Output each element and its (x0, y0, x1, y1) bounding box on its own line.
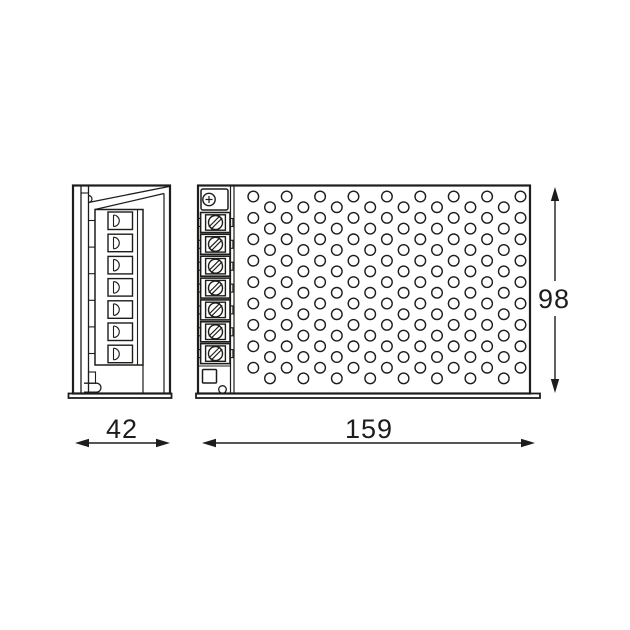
vent-hole (499, 223, 510, 234)
screw-head-icon (209, 237, 223, 251)
vent-hole (482, 213, 493, 224)
vent-hole (382, 277, 393, 288)
vent-hole (365, 266, 376, 277)
vent-hole (298, 223, 309, 234)
vent-hole (265, 288, 276, 299)
vent-hole (515, 234, 526, 245)
vent-hole (298, 245, 309, 256)
vent-hole (415, 320, 426, 331)
vent-hole (248, 362, 259, 373)
vent-hole (382, 341, 393, 352)
vent-hole (315, 213, 326, 224)
vent-hole (415, 298, 426, 309)
dimension-width-label: 42 (106, 414, 138, 444)
vent-hole (432, 266, 443, 277)
terminal-block-left-tab (198, 240, 201, 248)
vent-hole (298, 373, 309, 384)
vent-hole (432, 352, 443, 363)
terminal-slot (108, 345, 133, 363)
slot-hole-arc (114, 237, 120, 249)
vent-hole (315, 362, 326, 373)
vent-hole (382, 362, 393, 373)
vent-hole (348, 320, 359, 331)
vent-hole (365, 352, 376, 363)
vent-hole (332, 330, 343, 341)
vent-hole (499, 352, 510, 363)
arrow-left-icon (202, 439, 216, 447)
vent-hole (248, 191, 259, 202)
slot-hole-arc (114, 304, 120, 316)
vent-hole (448, 341, 459, 352)
vent-hole (281, 362, 292, 373)
vent-hole (432, 330, 443, 341)
arrow-right-icon (156, 439, 170, 447)
vent-hole (348, 255, 359, 266)
vent-hole (365, 288, 376, 299)
vent-hole (398, 223, 409, 234)
vent-hole (465, 245, 476, 256)
vent-hole (515, 298, 526, 309)
vent-hole (432, 373, 443, 384)
vent-hole (248, 234, 259, 245)
arrow-down-icon (551, 379, 559, 393)
vent-hole (348, 298, 359, 309)
vent-hole (415, 277, 426, 288)
vent-hole (298, 288, 309, 299)
side-foot-upper (89, 372, 96, 383)
vent-hole (398, 330, 409, 341)
terminal-block-right-tab (230, 262, 233, 270)
terminal-block-right-tab (230, 350, 233, 358)
vent-hole (265, 309, 276, 320)
vent-hole (265, 202, 276, 213)
front-base-plate (196, 394, 540, 399)
vent-hole (415, 341, 426, 352)
dimension-width: 42 (75, 414, 170, 447)
vent-hole (499, 373, 510, 384)
terminal-slot (108, 301, 133, 319)
side-cover-diagonal-outer (89, 187, 170, 203)
vent-hole (382, 234, 393, 245)
vent-hole (515, 362, 526, 373)
arrow-right-icon (521, 439, 535, 447)
vent-hole (298, 352, 309, 363)
vent-hole (265, 223, 276, 234)
vent-hole (499, 202, 510, 213)
slot-hole-arc (114, 282, 120, 294)
vent-hole (398, 373, 409, 384)
vent-hole (265, 373, 276, 384)
vent-hole (265, 330, 276, 341)
slot-hole-arc (114, 215, 120, 227)
vent-hole (315, 191, 326, 202)
terminal-block-left-tab (198, 219, 201, 227)
screw-head-icon (209, 281, 223, 295)
vent-hole (499, 245, 510, 256)
vent-hole (248, 277, 259, 288)
vent-hole (332, 309, 343, 320)
slot-hole-arc (114, 348, 120, 360)
vent-hole (415, 255, 426, 266)
vent-hole (332, 373, 343, 384)
vent-hole (499, 309, 510, 320)
vent-hole (465, 330, 476, 341)
vent-hole (332, 266, 343, 277)
vent-hole (515, 277, 526, 288)
vent-hole (482, 298, 493, 309)
vent-hole (482, 234, 493, 245)
vent-hole (365, 245, 376, 256)
terminal-block-left-tab (198, 350, 201, 358)
vent-hole (348, 234, 359, 245)
vent-hole (465, 202, 476, 213)
vent-hole (365, 202, 376, 213)
vent-hole (348, 341, 359, 352)
vent-hole (432, 202, 443, 213)
vent-hole (432, 245, 443, 256)
terminal-block-left-tab (198, 284, 201, 292)
vent-hole (298, 330, 309, 341)
vent-hole (382, 298, 393, 309)
vent-hole (265, 245, 276, 256)
vent-hole (515, 341, 526, 352)
vent-hole (499, 288, 510, 299)
side-view (69, 186, 172, 399)
vent-hole (248, 341, 259, 352)
side-terminal-slots (108, 212, 133, 363)
vent-hole (315, 341, 326, 352)
terminal-block-right-tab (230, 219, 233, 227)
terminal-block-right-tab (230, 284, 233, 292)
dimension-height: 98 (538, 187, 570, 393)
led-indicator (219, 386, 227, 394)
vent-hole (415, 362, 426, 373)
vent-hole (281, 255, 292, 266)
vent-hole (332, 245, 343, 256)
terminal-block-right-tab (230, 240, 233, 248)
terminal-block-left-tab (198, 262, 201, 270)
vent-hole (415, 191, 426, 202)
vent-hole (465, 223, 476, 234)
vent-hole (348, 191, 359, 202)
terminal-slot (108, 212, 133, 230)
slot-hole-arc (114, 259, 120, 271)
vent-hole (465, 266, 476, 277)
vent-hole (482, 255, 493, 266)
vent-hole (398, 202, 409, 213)
vent-hole (515, 320, 526, 331)
vent-hole (365, 373, 376, 384)
vent-hole (448, 298, 459, 309)
vent-hole (382, 255, 393, 266)
terminal-block-left-tab (198, 306, 201, 314)
vent-hole (448, 234, 459, 245)
screw-head-icon (209, 259, 223, 273)
perforation-grid (248, 191, 526, 384)
vent-hole (315, 298, 326, 309)
vent-hole (298, 309, 309, 320)
vent-hole (248, 255, 259, 266)
vent-hole (348, 277, 359, 288)
screw-head-icon (209, 216, 223, 230)
terminal-block-right-tab (230, 328, 233, 336)
vent-hole (365, 223, 376, 234)
vent-hole (281, 298, 292, 309)
dimension-length: 159 (202, 414, 535, 447)
earth-terminal (201, 189, 228, 210)
vent-hole (248, 213, 259, 224)
vent-hole (448, 191, 459, 202)
potentiometer-square (203, 370, 217, 384)
vent-hole (482, 320, 493, 331)
vent-hole (281, 213, 292, 224)
vent-hole (348, 213, 359, 224)
terminal-slot (108, 323, 133, 341)
vent-hole (432, 309, 443, 320)
side-foot (84, 383, 101, 392)
vent-hole (382, 213, 393, 224)
vent-hole (281, 320, 292, 331)
vent-hole (448, 362, 459, 373)
vent-hole (365, 330, 376, 341)
vent-hole (415, 213, 426, 224)
terminal-slot (108, 256, 133, 274)
vent-hole (432, 223, 443, 234)
vent-hole (332, 288, 343, 299)
vent-hole (499, 266, 510, 277)
vent-hole (281, 341, 292, 352)
vent-hole (348, 362, 359, 373)
arrow-left-icon (75, 439, 89, 447)
vent-hole (398, 288, 409, 299)
technical-drawing: 42 159 98 (0, 0, 630, 630)
vent-hole (448, 213, 459, 224)
vent-hole (515, 255, 526, 266)
terminal-block-left-tab (198, 328, 201, 336)
terminal-slot (108, 234, 133, 252)
vent-hole (281, 191, 292, 202)
vent-hole (432, 288, 443, 299)
vent-hole (365, 309, 376, 320)
vent-hole (315, 277, 326, 288)
terminal-slot (108, 279, 133, 297)
vent-hole (315, 255, 326, 266)
vent-hole (382, 191, 393, 202)
vent-hole (281, 234, 292, 245)
vent-hole (332, 223, 343, 234)
side-cover-diagonal-inner (95, 194, 164, 210)
vent-hole (482, 341, 493, 352)
vent-hole (248, 298, 259, 309)
vent-hole (248, 320, 259, 331)
vent-hole (499, 330, 510, 341)
vent-hole (332, 352, 343, 363)
front-view (196, 186, 540, 399)
arrow-up-icon (551, 187, 559, 201)
screw-head-icon (209, 303, 223, 317)
vent-hole (465, 373, 476, 384)
vent-hole (482, 362, 493, 373)
vent-hole (465, 352, 476, 363)
vent-hole (465, 288, 476, 299)
slot-hole-arc (114, 326, 120, 338)
vent-hole (315, 320, 326, 331)
drawing-canvas: 42 159 98 (0, 0, 630, 630)
vent-hole (382, 320, 393, 331)
front-terminal-blocks (198, 213, 233, 364)
vent-hole (398, 245, 409, 256)
vent-hole (265, 352, 276, 363)
vent-hole (415, 234, 426, 245)
vent-hole (482, 191, 493, 202)
vent-hole (448, 320, 459, 331)
vent-hole (281, 277, 292, 288)
vent-hole (298, 266, 309, 277)
vent-hole (515, 213, 526, 224)
vent-hole (482, 277, 493, 288)
dimension-height-label: 98 (538, 284, 570, 314)
vent-hole (398, 309, 409, 320)
vent-hole (398, 352, 409, 363)
vent-hole (515, 191, 526, 202)
screw-head-icon (209, 347, 223, 361)
terminal-block-right-tab (230, 306, 233, 314)
vent-hole (398, 266, 409, 277)
dimension-length-label: 159 (345, 414, 393, 444)
side-base-plate (69, 394, 172, 399)
vent-hole (448, 277, 459, 288)
vent-hole (465, 309, 476, 320)
screw-head-icon (209, 325, 223, 339)
vent-hole (315, 234, 326, 245)
vent-hole (265, 266, 276, 277)
vent-hole (448, 255, 459, 266)
vent-hole (298, 202, 309, 213)
vent-hole (332, 202, 343, 213)
